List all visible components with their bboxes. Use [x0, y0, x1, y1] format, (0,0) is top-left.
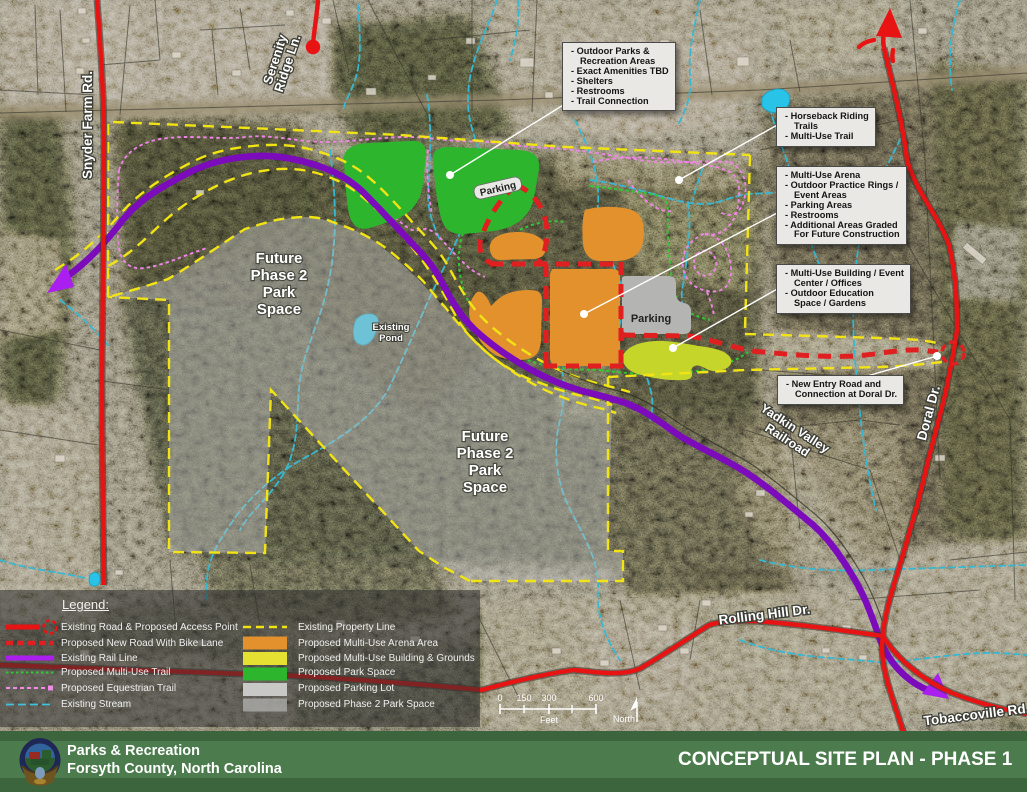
svg-text:Phase 2: Phase 2	[457, 445, 514, 462]
svg-text:Future: Future	[462, 428, 509, 445]
svg-text:Pond: Pond	[379, 333, 403, 344]
svg-text:150: 150	[516, 693, 531, 703]
svg-text:Space: Space	[463, 479, 507, 496]
svg-text:Snyder Farm Rd.: Snyder Farm Rd.	[80, 71, 95, 179]
svg-text:Parking: Parking	[631, 313, 671, 325]
svg-text:Phase 2: Phase 2	[251, 267, 308, 284]
svg-text:0: 0	[497, 693, 502, 703]
svg-text:Park: Park	[469, 462, 502, 479]
svg-text:Future: Future	[256, 250, 303, 267]
svg-text:Space: Space	[257, 301, 301, 318]
svg-text:Feet: Feet	[540, 715, 559, 725]
svg-text:Park: Park	[263, 284, 296, 301]
svg-text:North: North	[613, 714, 635, 724]
svg-text:Existing: Existing	[373, 322, 410, 333]
svg-text:600: 600	[588, 693, 603, 703]
svg-text:300: 300	[541, 693, 556, 703]
